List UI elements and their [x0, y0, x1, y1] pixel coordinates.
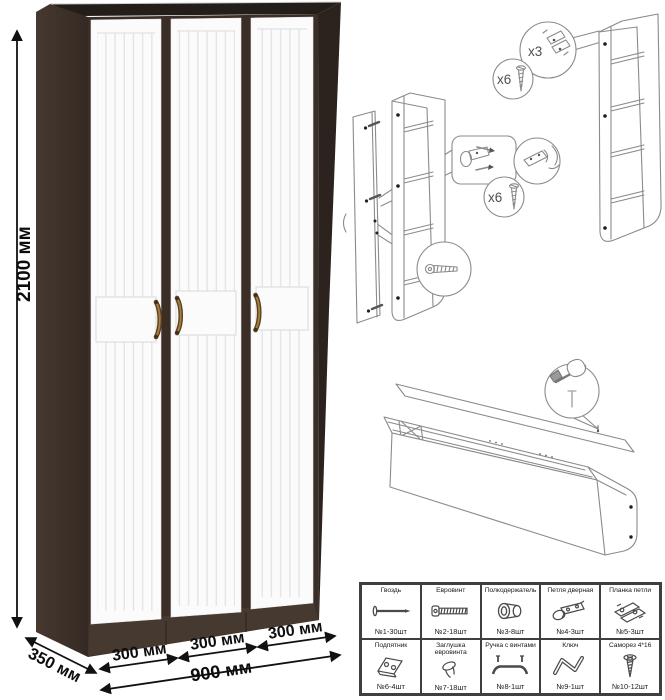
- door-rail-band: [96, 297, 156, 342]
- nail-icon: [369, 598, 413, 624]
- parts-table-cell-door-hinge: Петля дверная №4-3шт: [540, 584, 600, 639]
- part-name: Полкодержатель: [485, 587, 537, 594]
- hex-key-icon: [548, 653, 592, 679]
- part-count: №2-18шт: [435, 627, 467, 636]
- parts-table-cell-euro-screw: Евровинт №2-18шт: [421, 584, 481, 639]
- part-count: №5-3шт: [616, 627, 644, 636]
- diagram-cabinet-right: [599, 14, 661, 241]
- door-hinge-icon: [548, 598, 592, 624]
- callout-euro-screw: [417, 242, 471, 296]
- part-name: Ключ: [562, 642, 578, 649]
- part-count: №7-18шт: [435, 683, 467, 692]
- part-count: №10-12шт: [612, 682, 648, 691]
- part-name: Планка петли: [609, 587, 651, 594]
- wardrobe-side-panel: [36, 4, 88, 657]
- part-name: Ручка с винтами: [485, 642, 536, 649]
- part-count: №3-8шт: [497, 627, 525, 636]
- parts-table-cell-foot-glide: Подпятник №6-4шт: [361, 639, 421, 694]
- parts-table-cell-self-tapping-screw: Саморез 4*16 №10-12шт: [600, 639, 660, 694]
- part-count: №9-1шт: [556, 682, 584, 691]
- wardrobe-right-edge: [318, 2, 341, 620]
- part-name: Евровинт: [436, 587, 465, 594]
- foot-glide-icon: [369, 653, 413, 679]
- handle-icon: [488, 653, 532, 679]
- wardrobe-door-1: [91, 19, 161, 624]
- part-name: Гвоздь: [381, 587, 401, 594]
- wardrobe-door-2: [171, 18, 241, 617]
- height-label: 2100 мм: [14, 226, 35, 302]
- parts-table-cell-nail: Гвоздь №1-30шт: [361, 584, 421, 639]
- part-name: Саморез 4*16: [609, 642, 651, 649]
- hinge-plate-qty-label: x3: [528, 44, 542, 59]
- hinge-plate-icon: [608, 598, 652, 624]
- part-count: №4-3шт: [556, 627, 584, 636]
- assembly-diagram-hinges: [344, 14, 662, 323]
- screw-qty-top-label: x6: [497, 72, 511, 87]
- depth-label: 350 мм: [25, 645, 84, 687]
- euro-screw-icon: [429, 598, 473, 624]
- part-count: №8-1шт: [497, 682, 525, 691]
- callout-hammer: [545, 359, 599, 432]
- parts-table: Гвоздь №1-30шт Евровинт №2-18шт Полкодер…: [359, 582, 662, 696]
- part-name: Подпятник: [375, 642, 408, 649]
- part-count: №1-30шт: [375, 627, 407, 636]
- screw-cap-icon: [429, 657, 473, 683]
- parts-table-cell-shelf-support: Полкодержатель №3-8шт: [481, 584, 541, 639]
- parts-table-cell-hex-key: Ключ №9-1шт: [540, 639, 600, 694]
- assembly-instruction-page: 2100 мм 350 мм 300 мм 300 мм 300 мм 900 …: [0, 0, 665, 700]
- parts-table-cell-hinge-plate: Планка петли №5-3шт: [600, 584, 660, 639]
- parts-table-cell-handle: Ручка с винтами №8-1шт: [481, 639, 541, 694]
- self-tapping-screw-icon: [608, 653, 652, 679]
- assembly-diagram-back-panel: [384, 359, 637, 555]
- part-name: Заглушка евровинта: [423, 642, 479, 657]
- part-count: №6-4шт: [377, 682, 405, 691]
- wardrobe-illustration: [36, 2, 341, 657]
- door-rail-band: [256, 287, 308, 330]
- screw-qty-mid-label: x6: [488, 190, 502, 205]
- part-name: Петля дверная: [547, 587, 593, 594]
- diagram-door-panel: [344, 111, 383, 323]
- door-rail-band: [176, 291, 236, 335]
- parts-table-cell-screw-cap: Заглушка евровинта №7-18шт: [421, 639, 481, 694]
- total-width-label: 900 мм: [189, 657, 253, 686]
- shelf-support-icon: [488, 598, 532, 624]
- wardrobe-door-3: [251, 17, 313, 609]
